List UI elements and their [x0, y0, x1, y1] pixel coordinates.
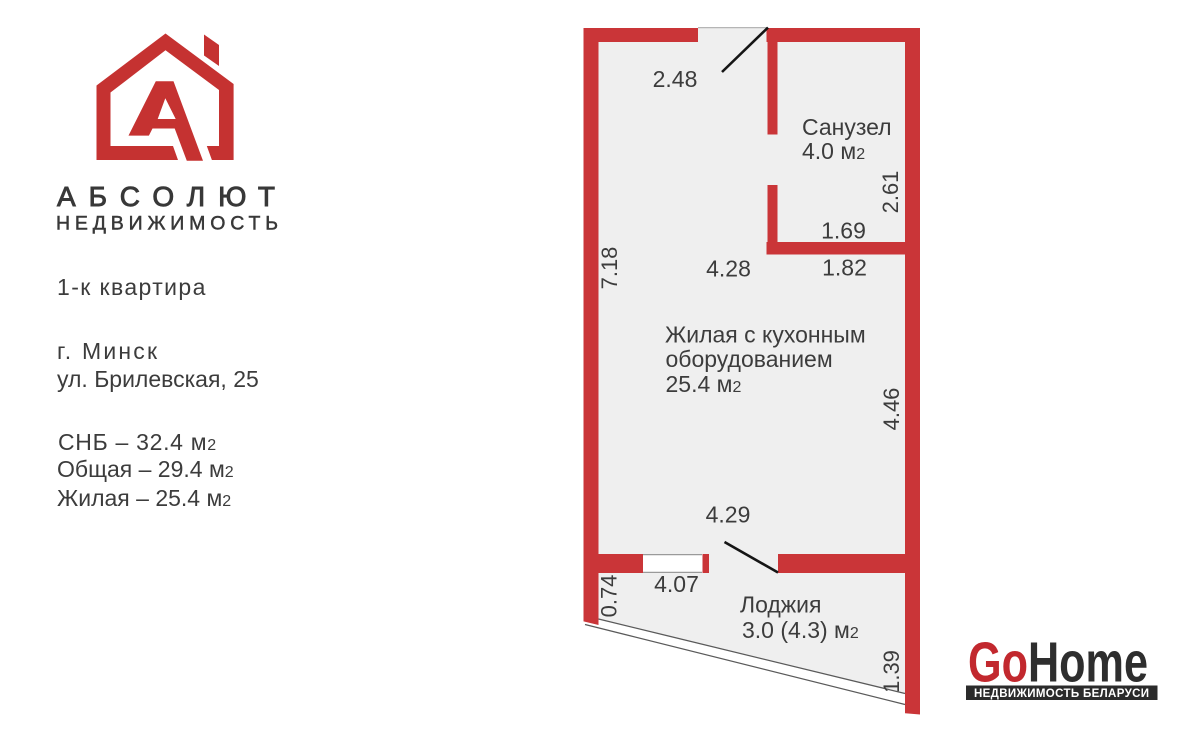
svg-text:2.48: 2.48 — [653, 66, 698, 92]
svg-text:1.39: 1.39 — [879, 650, 904, 693]
svg-text:GoHome: GoHome — [968, 631, 1148, 695]
svg-text:1.69: 1.69 — [821, 218, 866, 244]
svg-text:НЕДВИЖИМОСТЬ БЕЛАРУСИ: НЕДВИЖИМОСТЬ БЕЛАРУСИ — [974, 688, 1149, 700]
svg-text:Жилая – 25.4 м2: Жилая – 25.4 м2 — [57, 485, 231, 511]
svg-text:4.07: 4.07 — [654, 571, 699, 597]
svg-text:АБСОЛЮТ: АБСОЛЮТ — [57, 181, 275, 212]
svg-text:1-к квартира: 1-к квартира — [57, 274, 207, 300]
svg-text:СНБ – 32.4 м2: СНБ – 32.4 м2 — [58, 429, 217, 455]
svg-text:4.29: 4.29 — [706, 502, 751, 528]
svg-text:1.82: 1.82 — [822, 255, 867, 281]
svg-text:ул. Брилевская, 25: ул. Брилевская, 25 — [57, 366, 259, 392]
svg-text:2.61: 2.61 — [878, 171, 903, 214]
svg-text:Общая – 29.4 м2: Общая – 29.4 м2 — [57, 456, 234, 482]
svg-text:0.74: 0.74 — [597, 575, 622, 618]
svg-text:НЕДВИЖИМОСТЬ: НЕДВИЖИМОСТЬ — [56, 213, 278, 235]
svg-text:25.4 м2: 25.4 м2 — [666, 371, 742, 397]
svg-text:Санузел: Санузел — [802, 114, 892, 140]
svg-text:7.18: 7.18 — [597, 247, 622, 290]
svg-text:Лоджия: Лоджия — [740, 592, 822, 618]
svg-text:4.46: 4.46 — [879, 388, 904, 431]
svg-text:Жилая с кухонным: Жилая с кухонным — [665, 322, 866, 348]
svg-text:4.0 м2: 4.0 м2 — [802, 138, 865, 164]
svg-text:3.0 (4.3) м2: 3.0 (4.3) м2 — [742, 617, 859, 643]
svg-text:оборудованием: оборудованием — [666, 346, 833, 372]
svg-text:4.28: 4.28 — [706, 256, 751, 282]
svg-text:г. Минск: г. Минск — [57, 338, 159, 364]
